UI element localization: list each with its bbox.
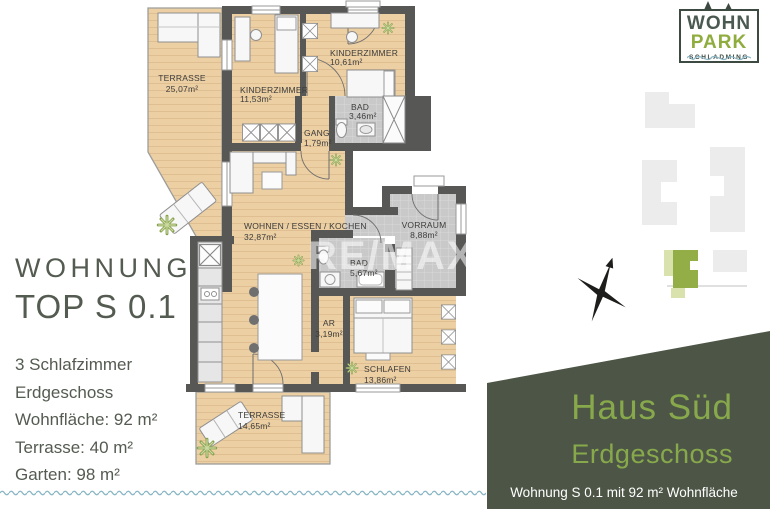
entry-step bbox=[414, 176, 444, 186]
detail-living-area: Wohnfläche: 92 m² bbox=[15, 406, 157, 434]
room-label: AR bbox=[323, 318, 335, 328]
apartment-details: 3 Schlafzimmer Erdgeschoss Wohnfläche: 9… bbox=[15, 351, 157, 489]
detail-terrace: Terrasse: 40 m² bbox=[15, 434, 157, 462]
info-panel-house: Haus Süd bbox=[571, 388, 733, 427]
room-label: SCHLAFEN bbox=[364, 364, 411, 374]
room-area: 13,86m² bbox=[364, 375, 397, 385]
room-area: 10,61m² bbox=[330, 57, 363, 67]
info-panel-caption: Wohnung S 0.1 mit 92 m² Wohnfläche bbox=[510, 485, 738, 500]
apartment-title-line2: TOP S 0.1 bbox=[15, 288, 177, 326]
room-label: TERRASSE bbox=[158, 73, 206, 83]
watermark: RE/MAX bbox=[308, 234, 476, 278]
kitchen-cabinets bbox=[198, 242, 222, 382]
room-label: WOHNEN / ESSEN / KOCHEN bbox=[244, 221, 367, 231]
compass-icon bbox=[566, 249, 639, 330]
room-label: TERRASSE bbox=[238, 410, 286, 420]
site-plan bbox=[642, 92, 747, 298]
room-area: 3,46m² bbox=[349, 111, 377, 121]
detail-floor: Erdgeschoss bbox=[15, 379, 157, 407]
room-area: 25,07m² bbox=[166, 84, 199, 94]
flyer-page: TERRASSE 25,07m² KINDERZIMMER 11,53m² KI… bbox=[0, 0, 770, 509]
room-label: VORRAUM bbox=[402, 220, 447, 230]
plant-icon bbox=[158, 216, 176, 234]
plant-icon bbox=[346, 362, 357, 373]
room-area: 3,19m² bbox=[315, 329, 343, 339]
info-panel: Haus Süd Erdgeschoss Wohnung S 0.1 mit 9… bbox=[487, 331, 770, 509]
plant-icon bbox=[198, 439, 216, 457]
detail-bedrooms: 3 Schlafzimmer bbox=[15, 351, 157, 379]
room-area: 11,53m² bbox=[240, 94, 272, 104]
room-area: 32,87m² bbox=[244, 232, 277, 242]
room-area: 14,65m² bbox=[238, 421, 271, 431]
wave-divider bbox=[0, 489, 486, 498]
detail-garden: Garten: 98 m² bbox=[15, 461, 157, 489]
site-highlight-building bbox=[664, 250, 698, 298]
logo-line2: PARK bbox=[681, 33, 757, 52]
balcony-door-sill bbox=[346, 1, 380, 7]
plant-icon bbox=[330, 154, 341, 165]
logo-wave-icon bbox=[687, 54, 751, 61]
room-label: GANG bbox=[304, 128, 330, 138]
logo-line1: WOHN bbox=[681, 14, 757, 33]
room-area: 1,79m² bbox=[304, 138, 332, 148]
apartment-title-line1: WOHNUNG bbox=[15, 253, 192, 284]
plant-icon bbox=[293, 255, 303, 265]
info-panel-floor: Erdgeschoss bbox=[571, 439, 733, 469]
